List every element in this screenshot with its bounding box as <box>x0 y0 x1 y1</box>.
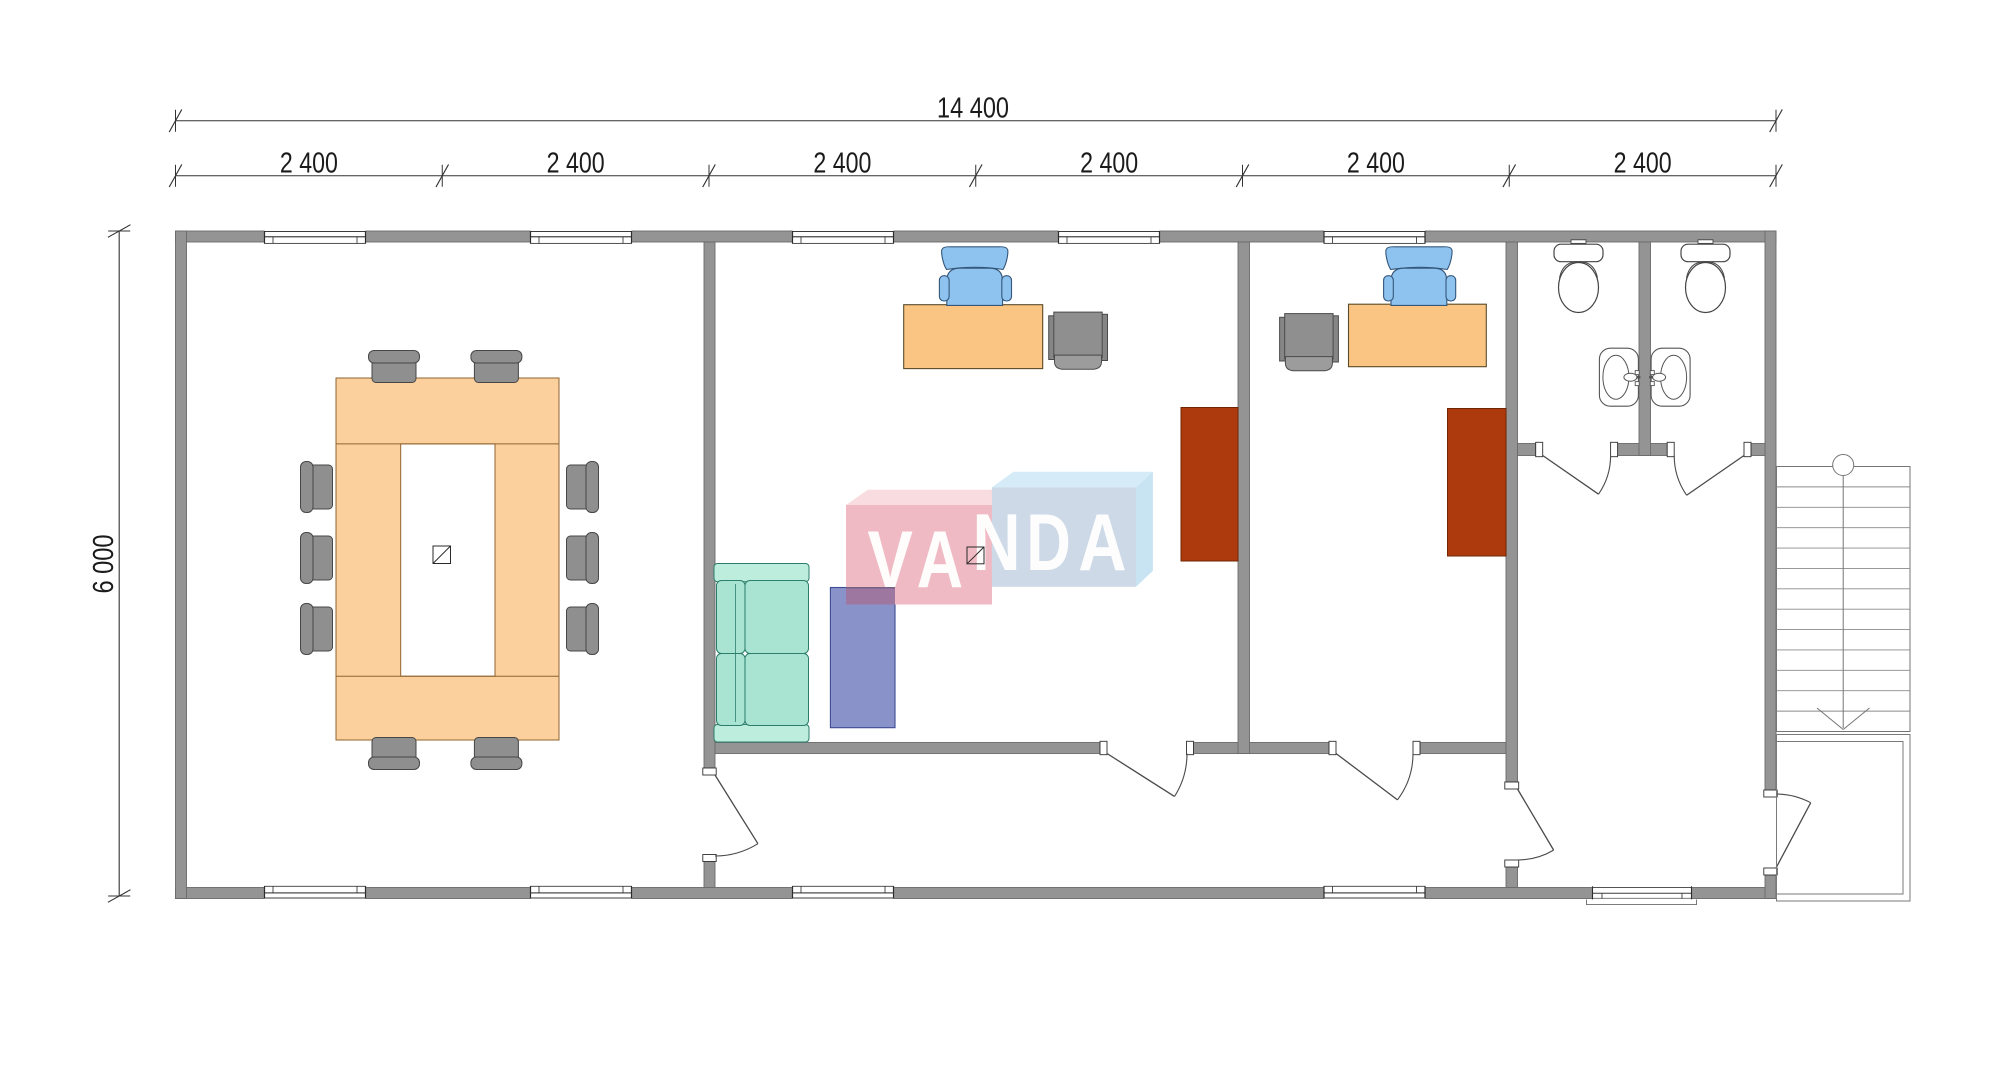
svg-text:6 000: 6 000 <box>88 535 120 594</box>
svg-text:2 400: 2 400 <box>280 148 338 180</box>
svg-text:2 400: 2 400 <box>813 148 871 180</box>
svg-text:2 400: 2 400 <box>547 148 605 180</box>
svg-text:2 400: 2 400 <box>1614 148 1672 180</box>
svg-text:A: A <box>917 515 964 605</box>
svg-text:V: V <box>867 515 913 605</box>
svg-text:A: A <box>1078 498 1126 588</box>
svg-text:D: D <box>1026 498 1071 588</box>
svg-text:N: N <box>972 498 1020 588</box>
svg-text:2 400: 2 400 <box>1080 148 1138 180</box>
svg-text:14 400: 14 400 <box>937 93 1009 125</box>
svg-text:2 400: 2 400 <box>1347 148 1405 180</box>
